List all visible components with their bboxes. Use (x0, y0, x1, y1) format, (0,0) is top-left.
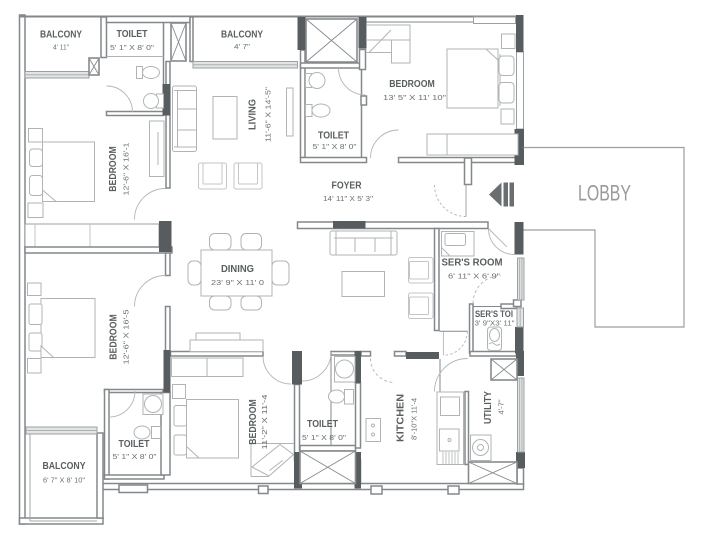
svg-text:14' 11" X 5' 3": 14' 11" X 5' 3" (323, 194, 373, 203)
svg-text:SER'S TOI: SER'S TOI (475, 309, 513, 319)
svg-text:BEDROOM: BEDROOM (248, 399, 259, 445)
svg-text:8'-10"X 11'-4: 8'-10"X 11'-4 (410, 398, 419, 440)
svg-text:UTILITY: UTILITY (483, 391, 494, 424)
svg-text:4' 7": 4' 7" (234, 42, 251, 51)
svg-text:12'-6" X 16'-1: 12'-6" X 16'-1 (122, 143, 131, 196)
svg-text:FOYER: FOYER (332, 181, 363, 192)
svg-text:6' 11" X 6' 9": 6' 11" X 6' 9" (448, 272, 501, 281)
svg-text:13' 5" X 11' 10": 13' 5" X 11' 10" (383, 93, 447, 102)
svg-text:11'-6" X 14'-5": 11'-6" X 14'-5" (264, 86, 273, 142)
svg-text:DINING: DINING (221, 264, 254, 275)
svg-text:5' 1" X 8' 0": 5' 1" X 8' 0" (113, 452, 158, 461)
svg-text:12'-6" X 16'-5: 12'-6" X 16'-5 (122, 310, 131, 365)
svg-text:5' 1" X 8' 0": 5' 1" X 8' 0" (110, 43, 155, 52)
svg-text:5' 1" X 8' 0": 5' 1" X 8' 0" (302, 433, 347, 442)
svg-text:BEDROOM: BEDROOM (109, 314, 120, 360)
svg-text:TOILET: TOILET (119, 439, 151, 450)
svg-text:BALCONY: BALCONY (40, 30, 82, 41)
svg-text:TOILET: TOILET (318, 131, 350, 142)
svg-text:5' 1" X 8' 0": 5' 1" X 8' 0" (313, 142, 358, 151)
svg-text:BEDROOM: BEDROOM (108, 146, 119, 192)
svg-text:TOILET: TOILET (117, 29, 149, 40)
svg-text:KITCHEN: KITCHEN (396, 394, 407, 442)
svg-text:BALCONY: BALCONY (43, 461, 86, 472)
svg-text:LIVING: LIVING (248, 99, 259, 130)
svg-text:6' 7" X 8' 10": 6' 7" X 8' 10" (43, 476, 85, 485)
svg-text:BEDROOM: BEDROOM (389, 79, 435, 90)
svg-text:SER'S ROOM: SER'S ROOM (442, 258, 503, 269)
svg-text:23' 9" X 11' 0: 23' 9" X 11' 0 (211, 278, 264, 287)
svg-text:LOBBY: LOBBY (578, 181, 631, 206)
svg-text:TOILET: TOILET (307, 419, 339, 430)
svg-text:BALCONY: BALCONY (221, 30, 263, 41)
svg-text:4'-7": 4'-7" (497, 399, 506, 414)
svg-text:4' 11": 4' 11" (53, 43, 69, 52)
svg-text:3' 9"X3' 11": 3' 9"X3' 11" (475, 319, 515, 328)
svg-text:11'-2" X 11'-4: 11'-2" X 11'-4 (260, 395, 269, 450)
